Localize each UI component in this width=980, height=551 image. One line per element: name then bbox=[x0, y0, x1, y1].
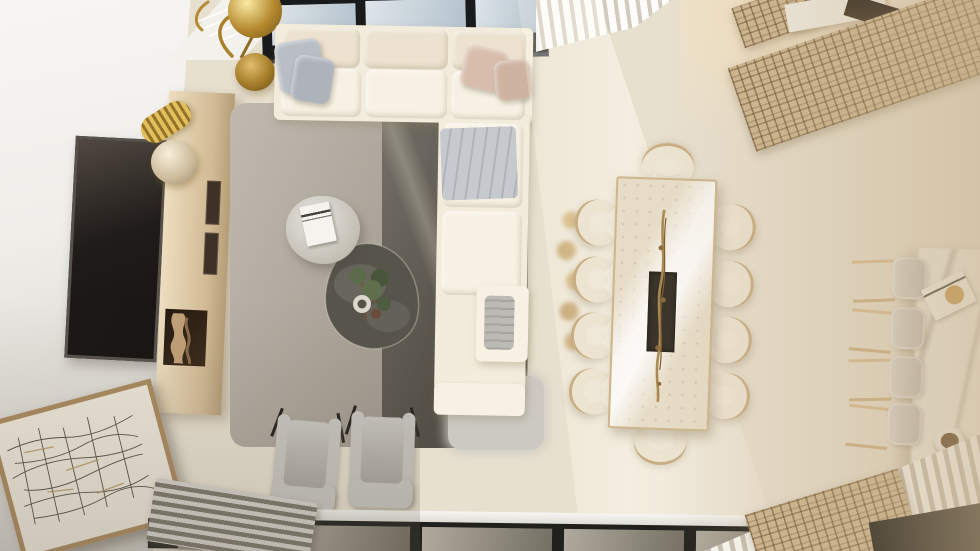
sectional-sofa bbox=[269, 24, 536, 420]
lounge-seat bbox=[476, 285, 529, 362]
stool-cushion bbox=[887, 403, 922, 446]
dining-set bbox=[559, 137, 770, 474]
stool-wood-frame bbox=[852, 259, 895, 302]
armchair-seat bbox=[283, 419, 331, 488]
armchair-seat bbox=[360, 416, 404, 483]
room-top-view bbox=[0, 0, 980, 551]
driftwood-sculpture bbox=[163, 309, 207, 367]
armchair-right bbox=[348, 411, 415, 509]
stool-cushion bbox=[888, 356, 923, 399]
cabinet-niche bbox=[163, 309, 207, 367]
curtain-top bbox=[536, 0, 674, 54]
stool-wood-frame bbox=[849, 308, 895, 354]
sofa-back-cushion bbox=[364, 28, 449, 69]
stool-cushion bbox=[890, 307, 925, 350]
sofa-arm-bottom bbox=[434, 383, 526, 417]
stool-wood-frame bbox=[848, 359, 891, 402]
wood-cabinet bbox=[155, 91, 235, 416]
cabinet-shelf-slot bbox=[205, 180, 221, 225]
lounge-seat-cushion bbox=[484, 295, 515, 350]
blush-pillow bbox=[493, 58, 532, 101]
stone-sphere-decor bbox=[151, 140, 197, 184]
grey-pillow bbox=[289, 54, 336, 106]
cabinet-shelf-slot bbox=[203, 232, 219, 275]
bottom-glass-pane bbox=[422, 527, 552, 551]
stool-wood-frame bbox=[845, 404, 891, 450]
artwork-scribbles bbox=[0, 387, 169, 546]
sofa-chaise-cushion bbox=[441, 211, 522, 296]
bottom-glass-pane bbox=[564, 529, 684, 551]
sofa-seat-cushion bbox=[365, 69, 448, 118]
pendant-lamp-disc bbox=[235, 53, 275, 91]
throw-blanket bbox=[440, 126, 518, 201]
